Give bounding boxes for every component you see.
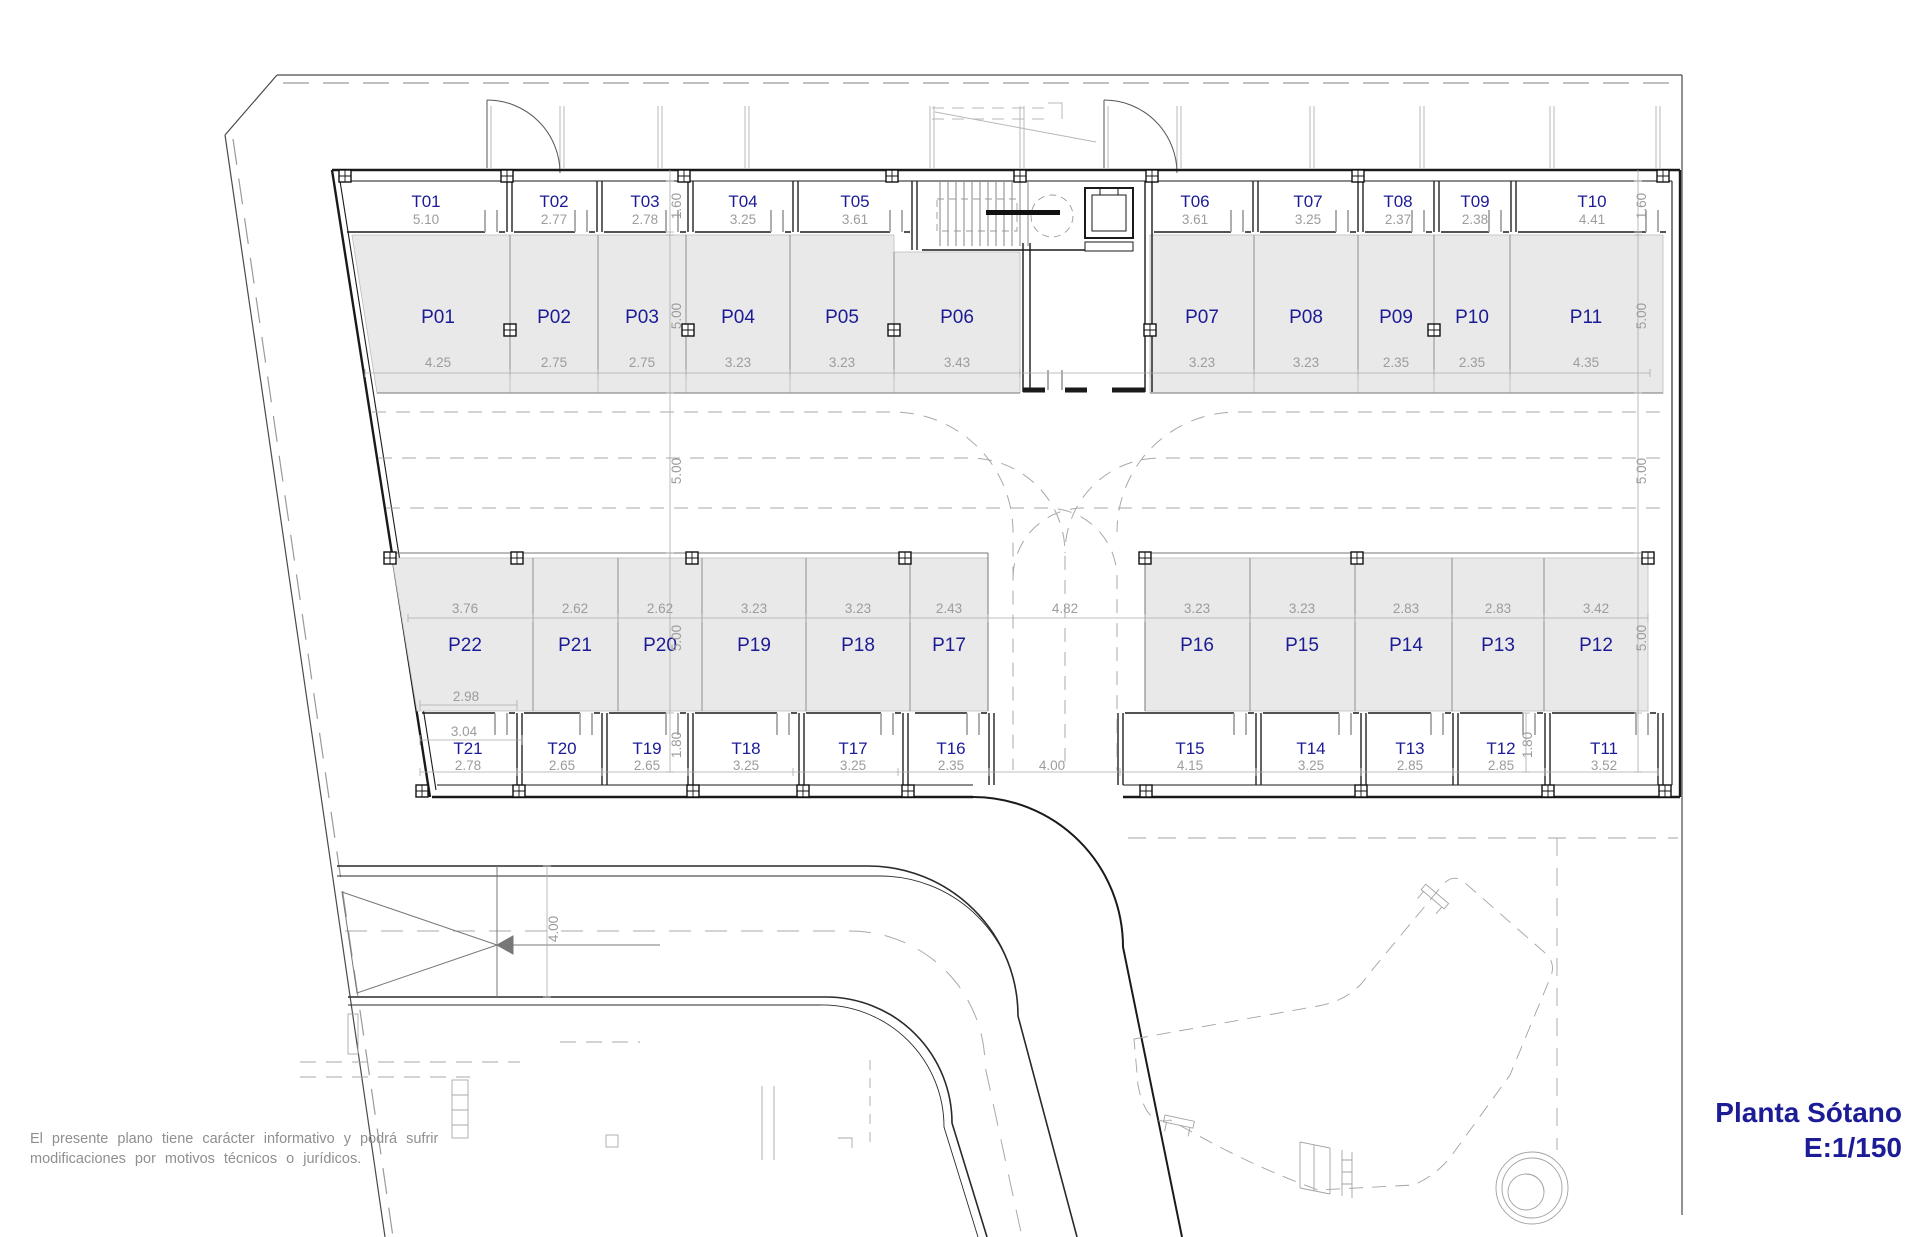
parking-stall-dim: 3.23 [1184, 601, 1210, 616]
parking-stall-label: P03 [625, 307, 659, 328]
parking-stall-dim: 2.83 [1393, 601, 1419, 616]
parking-stall-dim: 4.35 [1573, 355, 1599, 370]
storage-room-label: T01 [411, 192, 440, 211]
storage-room-label: T13 [1395, 739, 1424, 758]
parking-stall-dim: 3.23 [1189, 355, 1215, 370]
parking-stall-label: P11 [1570, 307, 1602, 328]
parking-stall-label: P21 [558, 635, 592, 656]
storage-room-label: T03 [630, 192, 659, 211]
storage-room-dim: 4.15 [1177, 758, 1203, 773]
storage-room-label: T07 [1293, 192, 1322, 211]
storage-room-dim: 3.52 [1591, 758, 1617, 773]
parking-stall-dim: 3.76 [452, 601, 478, 616]
parking-stall-dim: 2.75 [541, 355, 567, 370]
parking-stall-label: P22 [448, 635, 482, 656]
storage-room-label: T20 [547, 739, 576, 758]
storage-room-dim: 2.85 [1397, 758, 1423, 773]
parking-stall-label: P15 [1285, 635, 1319, 656]
upper-floor-outline [487, 100, 1660, 173]
storage-room-dim: 2.35 [938, 758, 964, 773]
parking-stall-dim: 3.23 [845, 601, 871, 616]
ground-detail-right [1128, 838, 1678, 1224]
dimension-label: 4.82 [1052, 601, 1078, 616]
storage-room-label: T08 [1383, 192, 1412, 211]
stair-handrail [986, 210, 1060, 215]
parking-stall-dim: 2.62 [647, 601, 673, 616]
road-south-curb [348, 997, 987, 1237]
turning-circle [1031, 195, 1073, 237]
dimension-label: 4.00 [1039, 758, 1065, 773]
dimension-label: 1.60 [669, 193, 684, 219]
storage-room-label: T14 [1296, 739, 1325, 758]
storage-room-label: T17 [838, 739, 867, 758]
parking-stall-dim: 2.35 [1383, 355, 1409, 370]
storage-room-label: T10 [1577, 192, 1606, 211]
dimension-label: 4.00 [546, 916, 561, 942]
storage-room-label: T06 [1180, 192, 1209, 211]
storage-room-dim: 3.61 [842, 212, 868, 227]
dimension-label: 5.00 [669, 458, 684, 484]
dimension-label: 5.00 [1634, 303, 1649, 329]
parking-stall-dim: 2.83 [1485, 601, 1511, 616]
dimension-label: 5.00 [669, 625, 684, 651]
storage-room-dim: 4.41 [1579, 212, 1605, 227]
parking-stall-dim: 3.23 [829, 355, 855, 370]
storage-room-dim: 2.85 [1488, 758, 1514, 773]
parking-stall-dim: 2.43 [936, 601, 962, 616]
parking-stall-label: P05 [825, 307, 859, 328]
storage-room-label: T19 [632, 739, 661, 758]
parking-stall-dim: 2.75 [629, 355, 655, 370]
parking-stall-label: P07 [1185, 307, 1219, 328]
storage-room-dim: 3.25 [1295, 212, 1321, 227]
parking-stall-label: P10 [1455, 307, 1489, 328]
parking-stall-label: P09 [1379, 307, 1413, 328]
tree-icon [1496, 1152, 1568, 1224]
road-south-curb-inner [348, 1005, 978, 1237]
parking-stall-label: P08 [1289, 307, 1323, 328]
parking-stall-dim: 3.43 [944, 355, 970, 370]
parking-stall-label: P16 [1180, 635, 1214, 656]
road-north-curb-inner [337, 876, 1018, 1014]
parking-stall-label: P13 [1481, 635, 1515, 656]
road-north-curb [337, 866, 1077, 1237]
parking-stall-dim: 3.42 [1583, 601, 1609, 616]
playground-outline [1134, 878, 1552, 1190]
storage-room-dim: 2.65 [549, 758, 575, 773]
plan-title: Planta Sótano [1715, 1097, 1902, 1128]
dimension-label: 5.00 [1634, 458, 1649, 484]
storage-room-dim: 3.61 [1182, 212, 1208, 227]
road-east-curve [973, 797, 1182, 1237]
parking-stall-dim: 2.62 [562, 601, 588, 616]
storage-room-dim: 2.38 [1462, 212, 1488, 227]
parking-stall-label: P01 [421, 307, 455, 328]
storage-room-dim: 2.78 [632, 212, 658, 227]
storage-room-dim: 3.25 [840, 758, 866, 773]
dimension-label: 1.60 [1634, 193, 1649, 219]
parking-stall-dim: 3.23 [1293, 355, 1319, 370]
boundary-dashed [1128, 838, 1678, 1150]
elevator [1085, 188, 1133, 251]
road-centerline [345, 931, 1022, 1237]
disclaimer-line: modificaciones por motivos técnicos o ju… [30, 1151, 361, 1167]
storage-room-dim: 3.25 [733, 758, 759, 773]
storage-room-label: T21 [453, 739, 482, 758]
floor-plan-svg: T01 5.10 T02 2.77 T03 2.78 T04 3.25 T05 … [0, 0, 1920, 1237]
parking-stall-label: P12 [1579, 635, 1613, 656]
storage-room-label: T12 [1486, 739, 1515, 758]
storage-room-label: T04 [728, 192, 757, 211]
parking-stall-dim: 3.23 [741, 601, 767, 616]
parking-stall-label: P17 [932, 635, 966, 656]
disclaimer: El presente plano tiene carácter informa… [30, 1131, 438, 1167]
parking-stall-label: P04 [721, 307, 755, 328]
floor-plan-page: T01 5.10 T02 2.77 T03 2.78 T04 3.25 T05 … [0, 0, 1920, 1237]
storage-room-dim: 2.65 [634, 758, 660, 773]
storage-room-label: T09 [1460, 192, 1489, 211]
title-block: Planta Sótano E:1/150 [1715, 1097, 1902, 1163]
storage-room-label: T05 [840, 192, 869, 211]
storage-room-dim: 3.25 [730, 212, 756, 227]
parking-stall-label: P18 [841, 635, 875, 656]
parking-stall-label: P19 [737, 635, 771, 656]
storage-room-label: T15 [1175, 739, 1204, 758]
parking-stall-dim: 3.23 [725, 355, 751, 370]
dimension-label: 3.04 [451, 724, 478, 739]
storage-room-label: T02 [539, 192, 568, 211]
storage-room-dim: 2.37 [1385, 212, 1411, 227]
storage-room-dim: 5.10 [413, 212, 439, 227]
bench-icon [1162, 1115, 1195, 1137]
roadway [337, 412, 1660, 1237]
dimension-label: 2.98 [453, 689, 479, 704]
parking-stall-label: P06 [940, 307, 974, 328]
parking-stall-label: P02 [537, 307, 571, 328]
plan-scale: E:1/150 [1804, 1132, 1902, 1163]
parking-stall-dim: 2.35 [1459, 355, 1485, 370]
storage-room-label: T16 [936, 739, 965, 758]
storage-room-dim: 3.25 [1298, 758, 1324, 773]
storage-room-label: T11 [1590, 739, 1618, 758]
dimension-label: 5.00 [1634, 625, 1649, 651]
dimension-label: 1.80 [669, 732, 684, 758]
storage-room-dim: 2.78 [455, 758, 481, 773]
dimension-label: 1.80 [1520, 732, 1535, 758]
disclaimer-line: El presente plano tiene carácter informa… [30, 1131, 438, 1147]
parking-stall-dim: 4.25 [425, 355, 451, 370]
storage-room-dim: 2.77 [541, 212, 567, 227]
storage-room-label: T18 [731, 739, 760, 758]
parking-stall-dim: 3.23 [1289, 601, 1315, 616]
dimension-label: 5.00 [669, 303, 684, 329]
parking-stall-label: P14 [1389, 635, 1423, 656]
